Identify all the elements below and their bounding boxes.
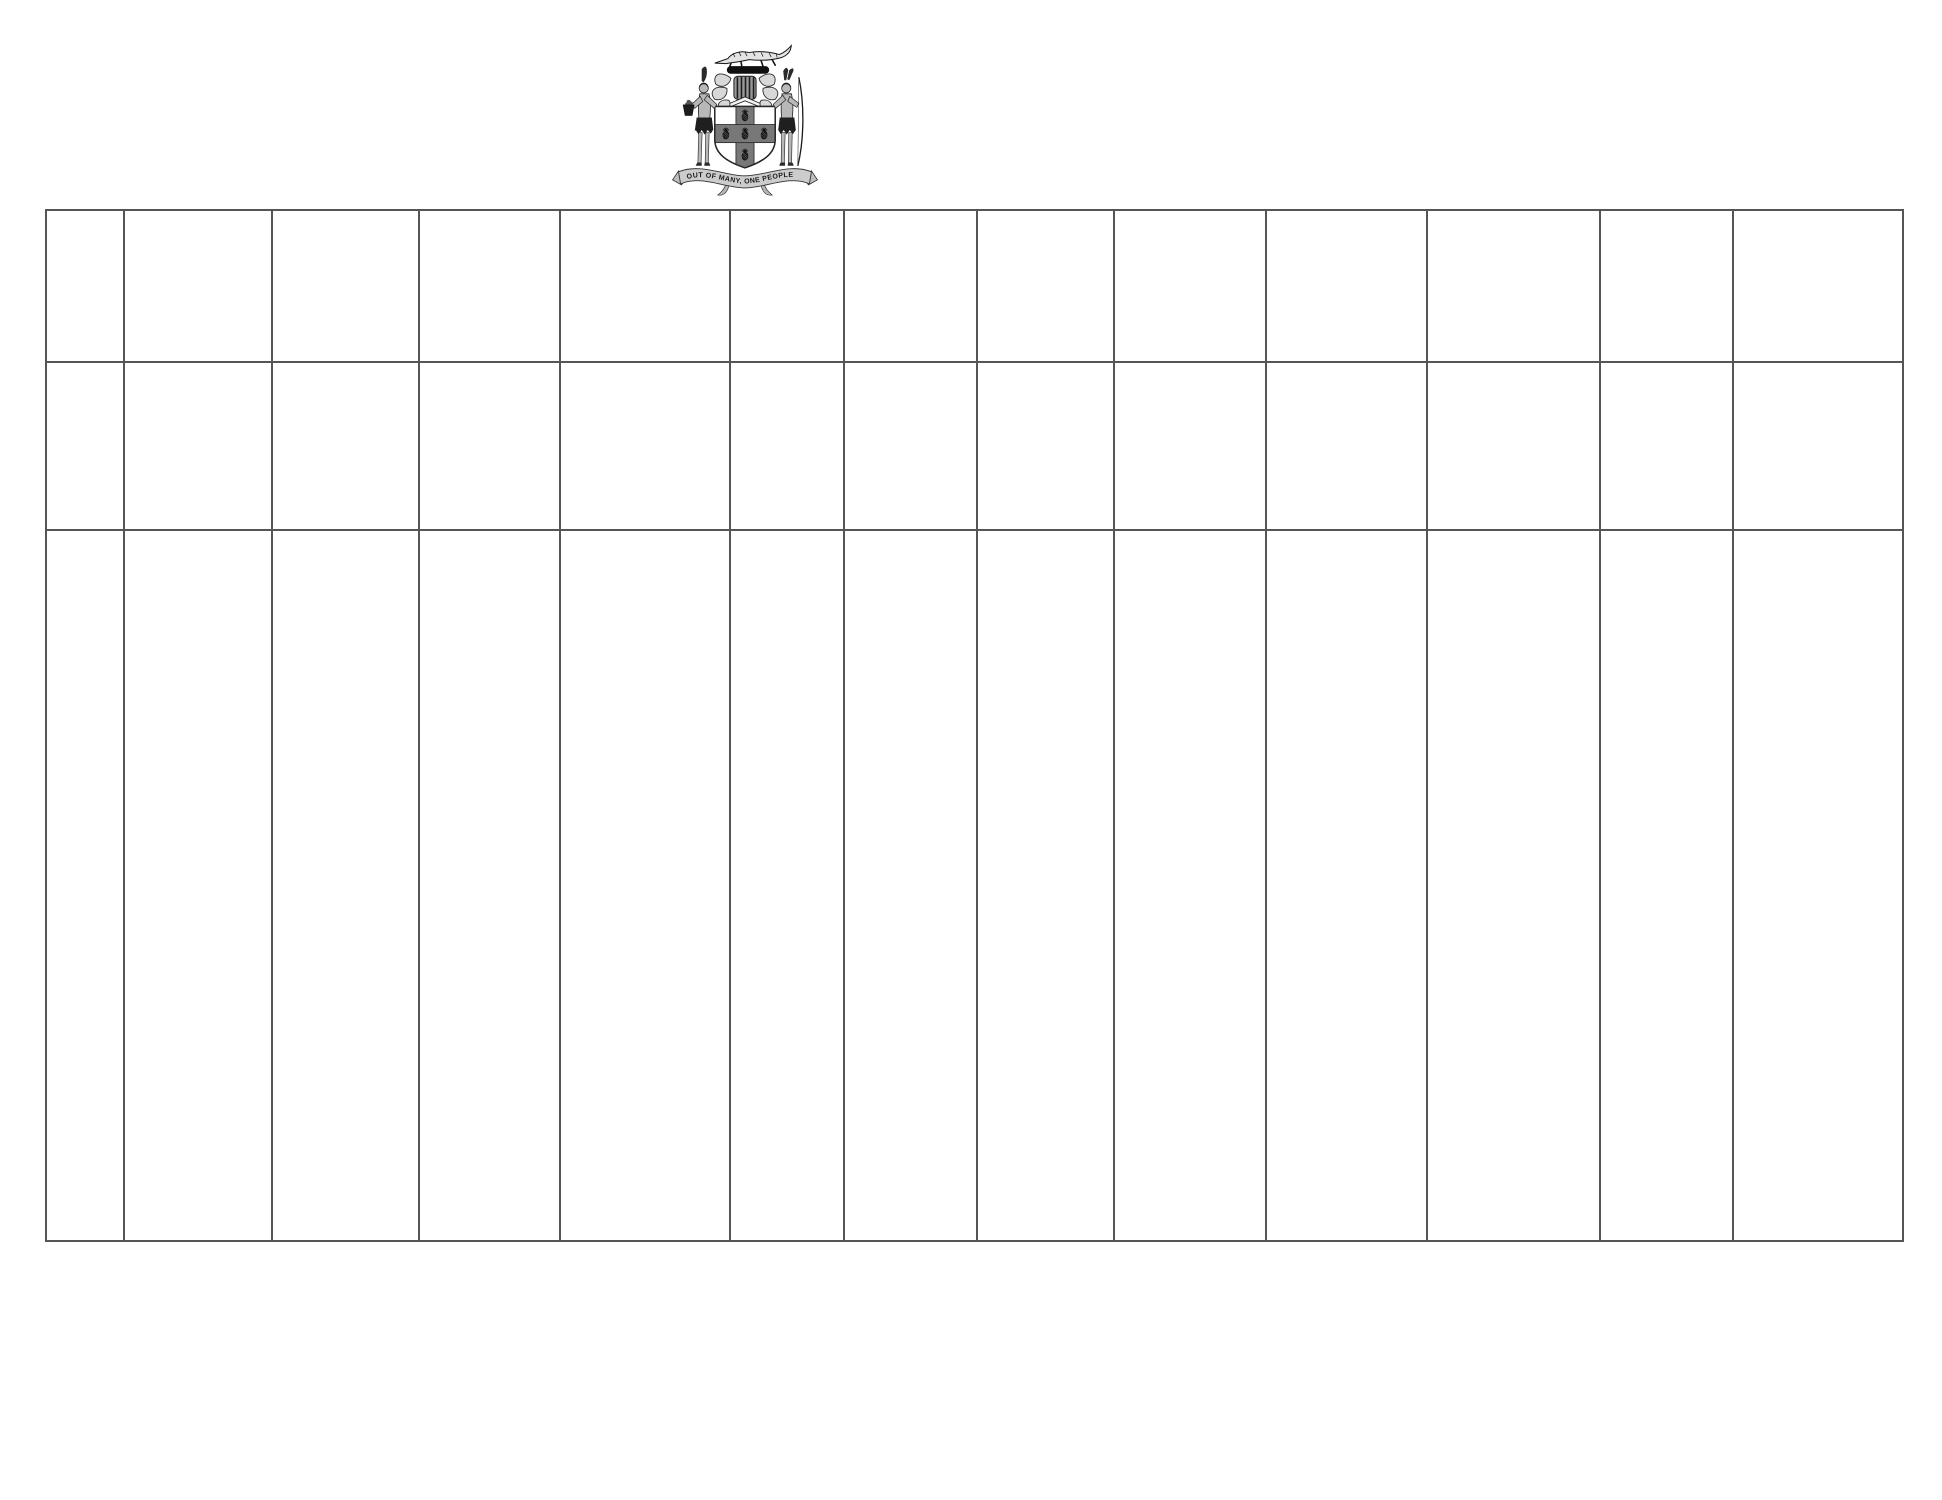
- table-row: [46, 210, 1903, 362]
- table-cell: [1266, 362, 1427, 530]
- table-cell: [560, 210, 730, 362]
- table-cell: [272, 530, 419, 1241]
- table-cell: [1114, 210, 1266, 362]
- table-cell: [1600, 362, 1733, 530]
- table-cell: [1600, 210, 1733, 362]
- document-page: OUT OF MANY, ONE PEOPLE: [0, 0, 1942, 1500]
- supporter-left-icon: [683, 67, 717, 166]
- table-cell: [730, 210, 844, 362]
- table-cell: [46, 362, 124, 530]
- table-cell: [977, 362, 1114, 530]
- coat-of-arms-graphic: OUT OF MANY, ONE PEOPLE: [670, 43, 822, 199]
- royal-helmet-icon: [730, 76, 760, 107]
- table-cell: [1427, 530, 1600, 1241]
- table-cell: [730, 530, 844, 1241]
- table-cell: [1266, 530, 1427, 1241]
- table-cell: [1266, 210, 1427, 362]
- table-cell: [1733, 530, 1903, 1241]
- table-cell: [1427, 210, 1600, 362]
- table-cell: [124, 530, 272, 1241]
- jamaica-coat-of-arms: OUT OF MANY, ONE PEOPLE: [670, 43, 822, 199]
- emblem-motto: OUT OF MANY, ONE PEOPLE: [686, 172, 793, 186]
- table-cell: [730, 362, 844, 530]
- table-cell: [1600, 530, 1733, 1241]
- crest-log: [727, 66, 769, 74]
- table-cell: [844, 530, 977, 1241]
- shield-icon: [715, 106, 775, 167]
- table-cell: [419, 210, 560, 362]
- table-cell: [124, 210, 272, 362]
- table-cell: [1114, 362, 1266, 530]
- table-cell: [1114, 530, 1266, 1241]
- table-row: [46, 530, 1903, 1241]
- table-cell: [977, 210, 1114, 362]
- table-cell: [419, 362, 560, 530]
- table-cell: [272, 362, 419, 530]
- table-cell: [1427, 362, 1600, 530]
- blank-table: [45, 209, 1904, 1242]
- table-cell: [124, 362, 272, 530]
- table-cell: [46, 210, 124, 362]
- crocodile-crest-icon: [715, 46, 791, 69]
- table-cell: [844, 210, 977, 362]
- table-cell: [46, 530, 124, 1241]
- table-cell: [844, 362, 977, 530]
- supporter-right-icon: [773, 68, 803, 166]
- table-cell: [560, 530, 730, 1241]
- table-cell: [1733, 362, 1903, 530]
- table-row: [46, 362, 1903, 530]
- table-cell: [272, 210, 419, 362]
- table-cell: [1733, 210, 1903, 362]
- table-cell: [419, 530, 560, 1241]
- table-cell: [977, 530, 1114, 1241]
- table-cell: [560, 362, 730, 530]
- motto-ribbon: OUT OF MANY, ONE PEOPLE: [673, 169, 818, 196]
